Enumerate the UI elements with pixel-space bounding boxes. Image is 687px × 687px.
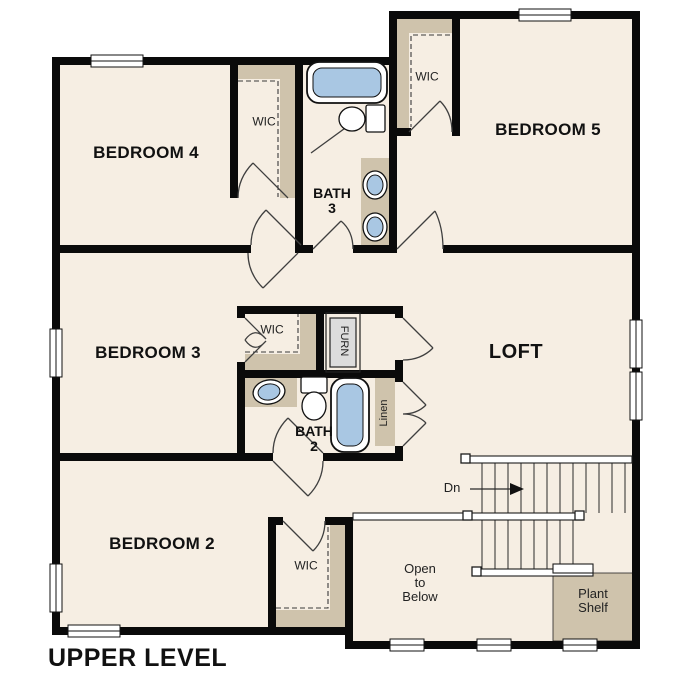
- bedroom2-label: BEDROOM 2: [109, 535, 215, 553]
- plant-shelf-label: Plant Shelf: [578, 587, 608, 615]
- stairs-down-label: Dn: [444, 481, 461, 495]
- page-title: UPPER LEVEL: [48, 645, 227, 672]
- open-to-below-label: Open to Below: [402, 562, 437, 604]
- loft-label: LOFT: [489, 342, 543, 364]
- bedroom3-label: BEDROOM 3: [95, 344, 201, 362]
- toilet-bath2: [301, 377, 327, 393]
- bath3-label: BATH 3: [313, 186, 351, 216]
- wic-bedroom3-label: WIC: [260, 324, 283, 337]
- floor-plan: BEDROOM 4 BEDROOM 5 BEDROOM 3 BEDROOM 2 …: [0, 0, 687, 687]
- bath3-label-line1: BATH: [313, 186, 351, 201]
- plant-shelf-line1: Plant: [578, 587, 608, 601]
- open-to-below-line3: Below: [402, 590, 437, 604]
- wic-bedroom5-label: WIC: [415, 71, 438, 84]
- bedroom4-label: BEDROOM 4: [93, 144, 199, 162]
- bath2-label-line1: BATH: [295, 424, 333, 439]
- bath2-label: BATH 2: [295, 424, 333, 454]
- bath2-label-line2: 2: [295, 439, 333, 454]
- open-to-below-line2: to: [402, 576, 437, 590]
- wic-bedroom2-label: WIC: [294, 560, 317, 573]
- bath3-label-line2: 3: [313, 201, 351, 216]
- bedroom5-label: BEDROOM 5: [495, 121, 601, 139]
- furnace-label: FURN: [337, 326, 349, 357]
- plant-shelf-line2: Shelf: [578, 601, 608, 615]
- open-to-below-line1: Open: [402, 562, 437, 576]
- wic-bedroom4-label: WIC: [252, 116, 275, 129]
- linen-label: Linen: [379, 400, 391, 427]
- toilet-bath3: [366, 105, 385, 132]
